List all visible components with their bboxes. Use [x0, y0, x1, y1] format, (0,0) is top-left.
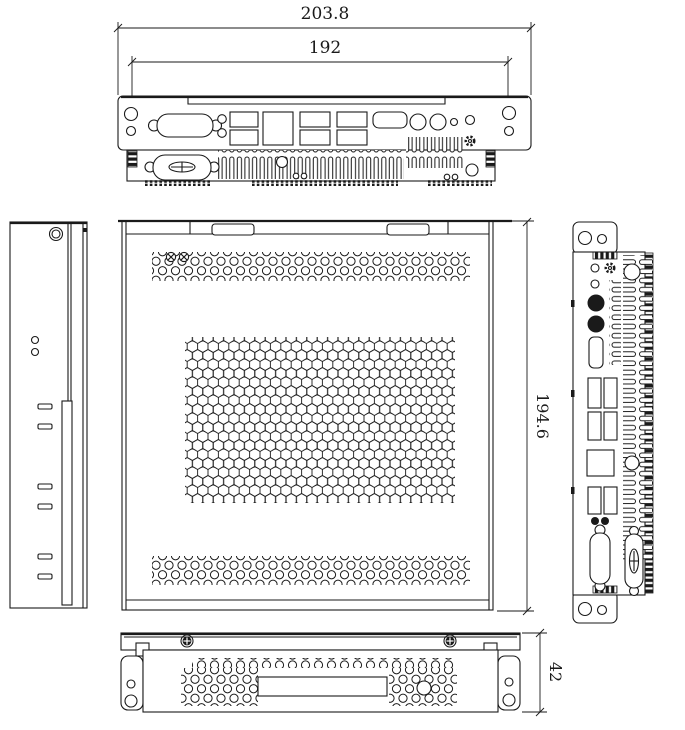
mounting-hole-left-top — [125, 108, 138, 121]
dim-overall-width-label: 203.8 — [301, 4, 350, 24]
right-ear-hole-1 — [579, 232, 592, 245]
led-indicator-hole — [451, 119, 458, 126]
dc-power-connector — [145, 155, 219, 180]
hex-mesh-vent — [185, 337, 455, 503]
top-view-screw-2 — [179, 252, 188, 261]
right-lan-port — [587, 450, 614, 476]
bottom-large-hole — [417, 681, 431, 695]
left-side-hole-1 — [32, 337, 39, 344]
antenna-hole-1 — [410, 114, 426, 130]
front-vent-hole-1 — [277, 157, 288, 168]
top-view-screw-1 — [166, 252, 175, 261]
mounting-hole-left-bottom — [127, 127, 136, 136]
right-antenna-hole — [624, 264, 640, 280]
right-side-view — [571, 222, 653, 623]
right-thumbscrew-icon — [606, 264, 614, 272]
right-hdmi-port — [589, 337, 603, 368]
right-ear-hole-2 — [598, 235, 607, 244]
dimension-depth: 194.6 — [497, 218, 552, 615]
right-led-hole — [591, 280, 599, 288]
left-side-screw — [50, 228, 63, 241]
side-clip-left — [128, 151, 137, 167]
technical-drawing-page: 203.8 192 — [0, 0, 685, 730]
top-view-tab-right — [387, 224, 429, 235]
bottom-ear-hole-4 — [503, 694, 515, 706]
right-ear-hole-4 — [598, 606, 607, 615]
power-button-hole — [466, 116, 475, 125]
right-audio-jack-1 — [588, 295, 605, 312]
bottom-ear-hole-1 — [127, 680, 135, 688]
left-side-plate — [10, 222, 87, 608]
bottom-ear-hole-2 — [125, 695, 137, 707]
antenna-hole-2 — [430, 114, 446, 130]
front-vent-hole-3 — [301, 173, 307, 179]
audio-jack-top — [218, 115, 227, 124]
right-ear-hole-3 — [579, 603, 592, 616]
dimension-height: 42 — [522, 629, 565, 716]
dim-mounting-span-label: 192 — [309, 38, 341, 58]
left-side-hole-2 — [32, 349, 39, 356]
front-vent-hole-5 — [444, 174, 450, 180]
bottom-ear-hole-3 — [505, 678, 513, 686]
bottom-center-slot — [258, 677, 387, 696]
front-vent-hole-6 — [452, 174, 458, 180]
bottom-hole-cluster-left — [181, 668, 258, 706]
right-audio-jack-2 — [588, 316, 605, 333]
hdmi-port — [373, 112, 407, 128]
bottom-screw-2 — [444, 635, 456, 647]
right-led-dot-1 — [591, 517, 599, 525]
right-view-clip-top — [593, 252, 617, 259]
chassis-orthographic-views: 203.8 192 — [0, 0, 685, 730]
right-power-button-hole — [591, 264, 599, 272]
right-edge-nub-1 — [571, 300, 575, 307]
right-vent-hole — [625, 456, 639, 470]
front-vent-hole-2 — [293, 173, 299, 179]
lan-port — [263, 112, 293, 145]
top-view-tab-left — [212, 224, 254, 235]
left-side-rail — [62, 401, 72, 605]
right-edge-nub-3 — [571, 487, 575, 494]
bottom-hole-row — [192, 658, 454, 668]
side-clip-right — [486, 151, 495, 167]
left-side-view — [10, 222, 87, 608]
right-vent-slots-short — [609, 280, 621, 365]
front-vent-hole-4 — [466, 164, 478, 176]
mounting-hole-right-top — [503, 107, 516, 120]
right-led-dot-2 — [601, 517, 609, 525]
vga-port — [149, 114, 222, 137]
top-hole-band-upper — [152, 252, 470, 281]
bottom-screw-1 — [181, 635, 193, 647]
front-vent-slots-right — [406, 137, 464, 168]
mounting-hole-right-bottom — [505, 127, 514, 136]
top-plan-view — [118, 221, 512, 610]
front-bottom-hatch — [145, 182, 492, 185]
dim-depth-label: 194.6 — [533, 393, 552, 439]
left-side-notch — [83, 228, 87, 232]
right-dc-connector — [625, 527, 643, 596]
audio-jack-bottom — [218, 129, 227, 138]
dim-height-label: 42 — [546, 662, 565, 682]
right-vent-slots-long — [623, 255, 652, 560]
top-hole-band-lower — [152, 556, 470, 585]
front-vent-slots-left — [218, 150, 404, 179]
front-panel-view — [118, 96, 531, 185]
bottom-view — [121, 633, 520, 712]
right-edge-nub-2 — [571, 390, 575, 397]
right-vga-port — [590, 525, 610, 591]
